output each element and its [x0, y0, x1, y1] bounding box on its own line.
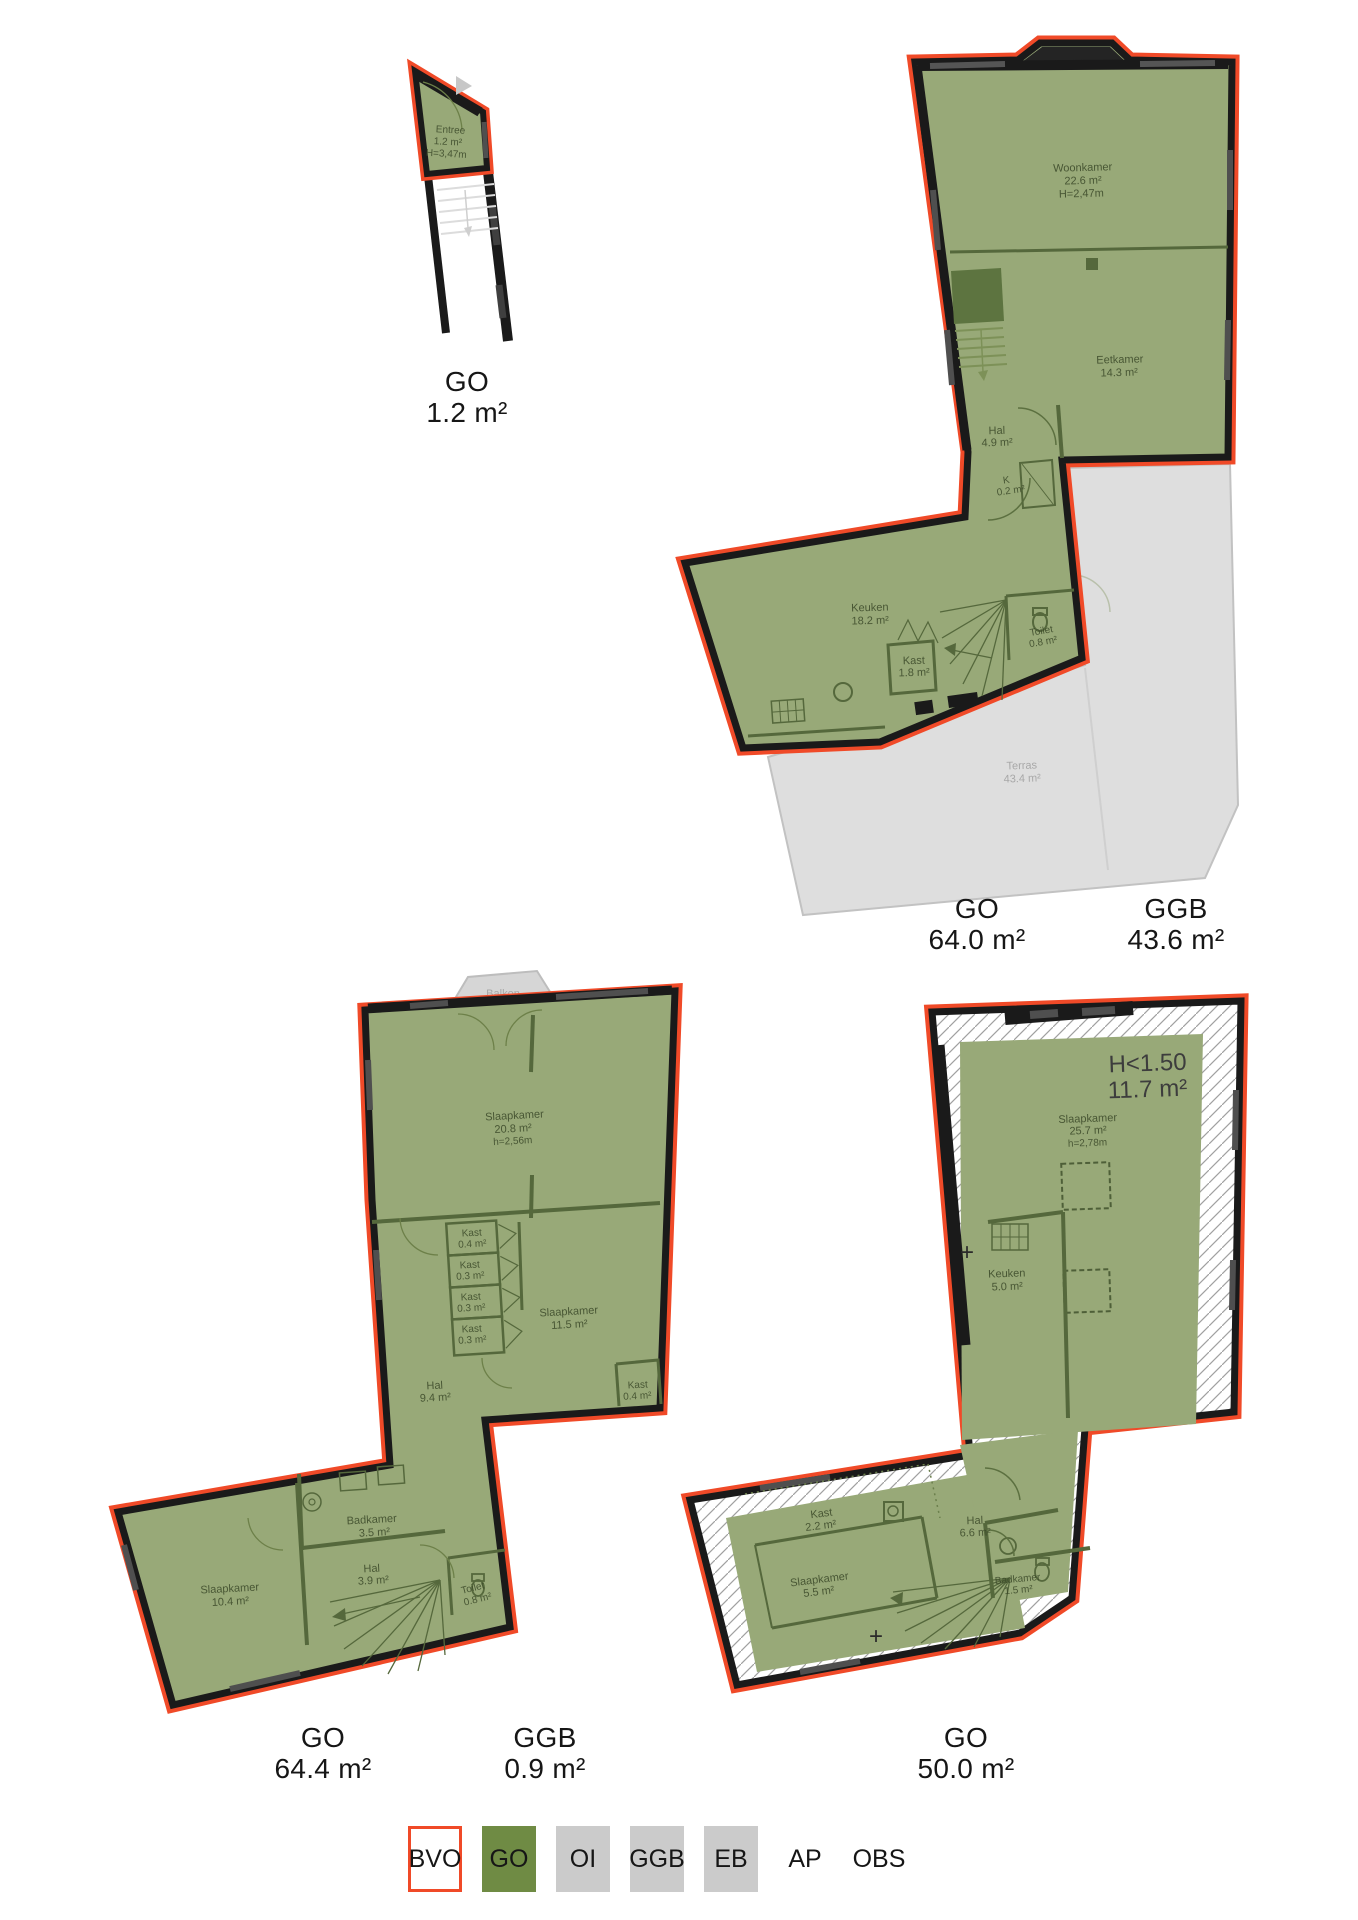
entrance-arrow-icon [456, 76, 472, 95]
room-area: 14.3 m² [1100, 367, 1138, 380]
room-area: 3.9 m² [357, 1574, 389, 1588]
room-area: 0.4 m² [623, 1390, 653, 1403]
low-height-label: H<1.50 11.7 m² [1106, 1049, 1188, 1105]
room-area: 20.8 m² [494, 1122, 532, 1136]
room-name: Hal [426, 1380, 443, 1393]
plan-third-floor: + + H<1.50 11.7 m² Slaapkamer 25.7 m² h=… [690, 1001, 1241, 1685]
low-height-line2: 11.7 m² [1107, 1075, 1187, 1105]
total-ggb-second-floor: GGB 0.9 m² [435, 1722, 655, 1784]
room-name: Hal [363, 1563, 380, 1576]
legend: BVO GO OI GGB EB AP OBS [408, 1826, 926, 1892]
room-name: Eetkamer [1096, 353, 1144, 366]
room-name: Entree [435, 124, 465, 137]
room-area: 9.4 m² [419, 1391, 451, 1405]
total-go-third-floor: GO 50.0 m² [856, 1722, 1076, 1784]
legend-item-go: GO [482, 1826, 536, 1892]
room-area: 0.3 m² [456, 1270, 486, 1283]
legend-item-ap: AP [778, 1826, 832, 1892]
room-area: 5.0 m² [991, 1280, 1023, 1293]
legend-item-obs: OBS [852, 1826, 906, 1892]
plan-first-floor: Terras 43.4 m² [685, 43, 1238, 915]
total-ggb-first-floor: GGB 43.6 m² [1066, 893, 1286, 955]
total-label: GO [213, 1722, 433, 1753]
total-value: 1.2 m² [357, 397, 577, 428]
room-area: 6.6 m² [959, 1526, 991, 1539]
room-area: 1.2 m² [433, 136, 463, 149]
entree-window [484, 122, 486, 158]
room-area: 18.2 m² [851, 615, 889, 628]
total-value: 64.4 m² [213, 1753, 433, 1784]
legend-item-bvo: BVO [408, 1826, 462, 1892]
total-label: GGB [1066, 893, 1286, 924]
keuken-label: Keuken 18.2 m² [851, 602, 889, 628]
room-name: Woonkamer [1053, 161, 1113, 175]
room-name: Slaapkamer [1058, 1112, 1117, 1126]
terras-label: Terras 43.4 m² [1003, 759, 1041, 785]
section-marker-plus-2: + [869, 1623, 883, 1650]
eetkamer-label: Eetkamer 14.3 m² [1096, 353, 1144, 379]
second-floor-rooms [118, 991, 675, 1705]
total-label: GO [357, 366, 577, 397]
total-go-second-floor: GO 64.4 m² [213, 1722, 433, 1784]
room-height: H=3,47m [426, 148, 467, 161]
floorplan-sheet: Entree 1.2 m² H=3,47m Terras 43.4 m² [0, 0, 1358, 1920]
total-value: 0.9 m² [435, 1753, 655, 1784]
room-area: 10.4 m² [211, 1595, 249, 1609]
room-name: Hal [988, 425, 1005, 437]
room-area: 3.5 m² [359, 1526, 391, 1540]
section-marker-plus-1: + [960, 1239, 974, 1266]
total-value: 43.6 m² [1066, 924, 1286, 955]
plan-entree: Entree 1.2 m² H=3,47m [415, 71, 508, 341]
total-value: 50.0 m² [856, 1753, 1076, 1784]
room-area: 11.5 m² [551, 1318, 588, 1332]
total-label: GO [856, 1722, 1076, 1753]
room-area: 22.6 m² [1064, 175, 1102, 188]
legend-item-eb: EB [704, 1826, 758, 1892]
room-name: Keuken [988, 1267, 1026, 1280]
total-go-entree: GO 1.2 m² [357, 366, 577, 428]
room-area: 0.3 m² [458, 1334, 488, 1347]
room-area: 4.9 m² [981, 437, 1013, 450]
total-label: GGB [435, 1722, 655, 1753]
room-area: 43.4 m² [1003, 772, 1041, 785]
low-height-line1: H<1.50 [1108, 1049, 1187, 1079]
room-area: 0.3 m² [457, 1302, 487, 1315]
total-label: GO [867, 893, 1087, 924]
room-height: h=2,78m [1068, 1137, 1108, 1149]
total-go-first-floor: GO 64.0 m² [867, 893, 1087, 955]
keuken-label: Keuken 5.0 m² [988, 1267, 1026, 1293]
legend-item-oi: OI [556, 1826, 610, 1892]
room-area: 1.8 m² [898, 667, 930, 680]
plan-second-floor: Balkon 0.9 m² [118, 971, 675, 1705]
room-name: Hal [966, 1515, 983, 1528]
room-name: Kast [903, 655, 925, 668]
room-height: h=2,56m [493, 1135, 533, 1148]
room-name: Keuken [851, 602, 889, 615]
room-name: Terras [1006, 759, 1037, 772]
room-area: 0.4 m² [458, 1238, 488, 1251]
room-area: 25.7 m² [1069, 1124, 1107, 1137]
legend-item-ggb: GGB [630, 1826, 684, 1892]
total-value: 64.0 m² [867, 924, 1087, 955]
room-height: H=2,47m [1059, 187, 1104, 200]
floorplan-canvas: Entree 1.2 m² H=3,47m Terras 43.4 m² [0, 0, 1358, 1920]
